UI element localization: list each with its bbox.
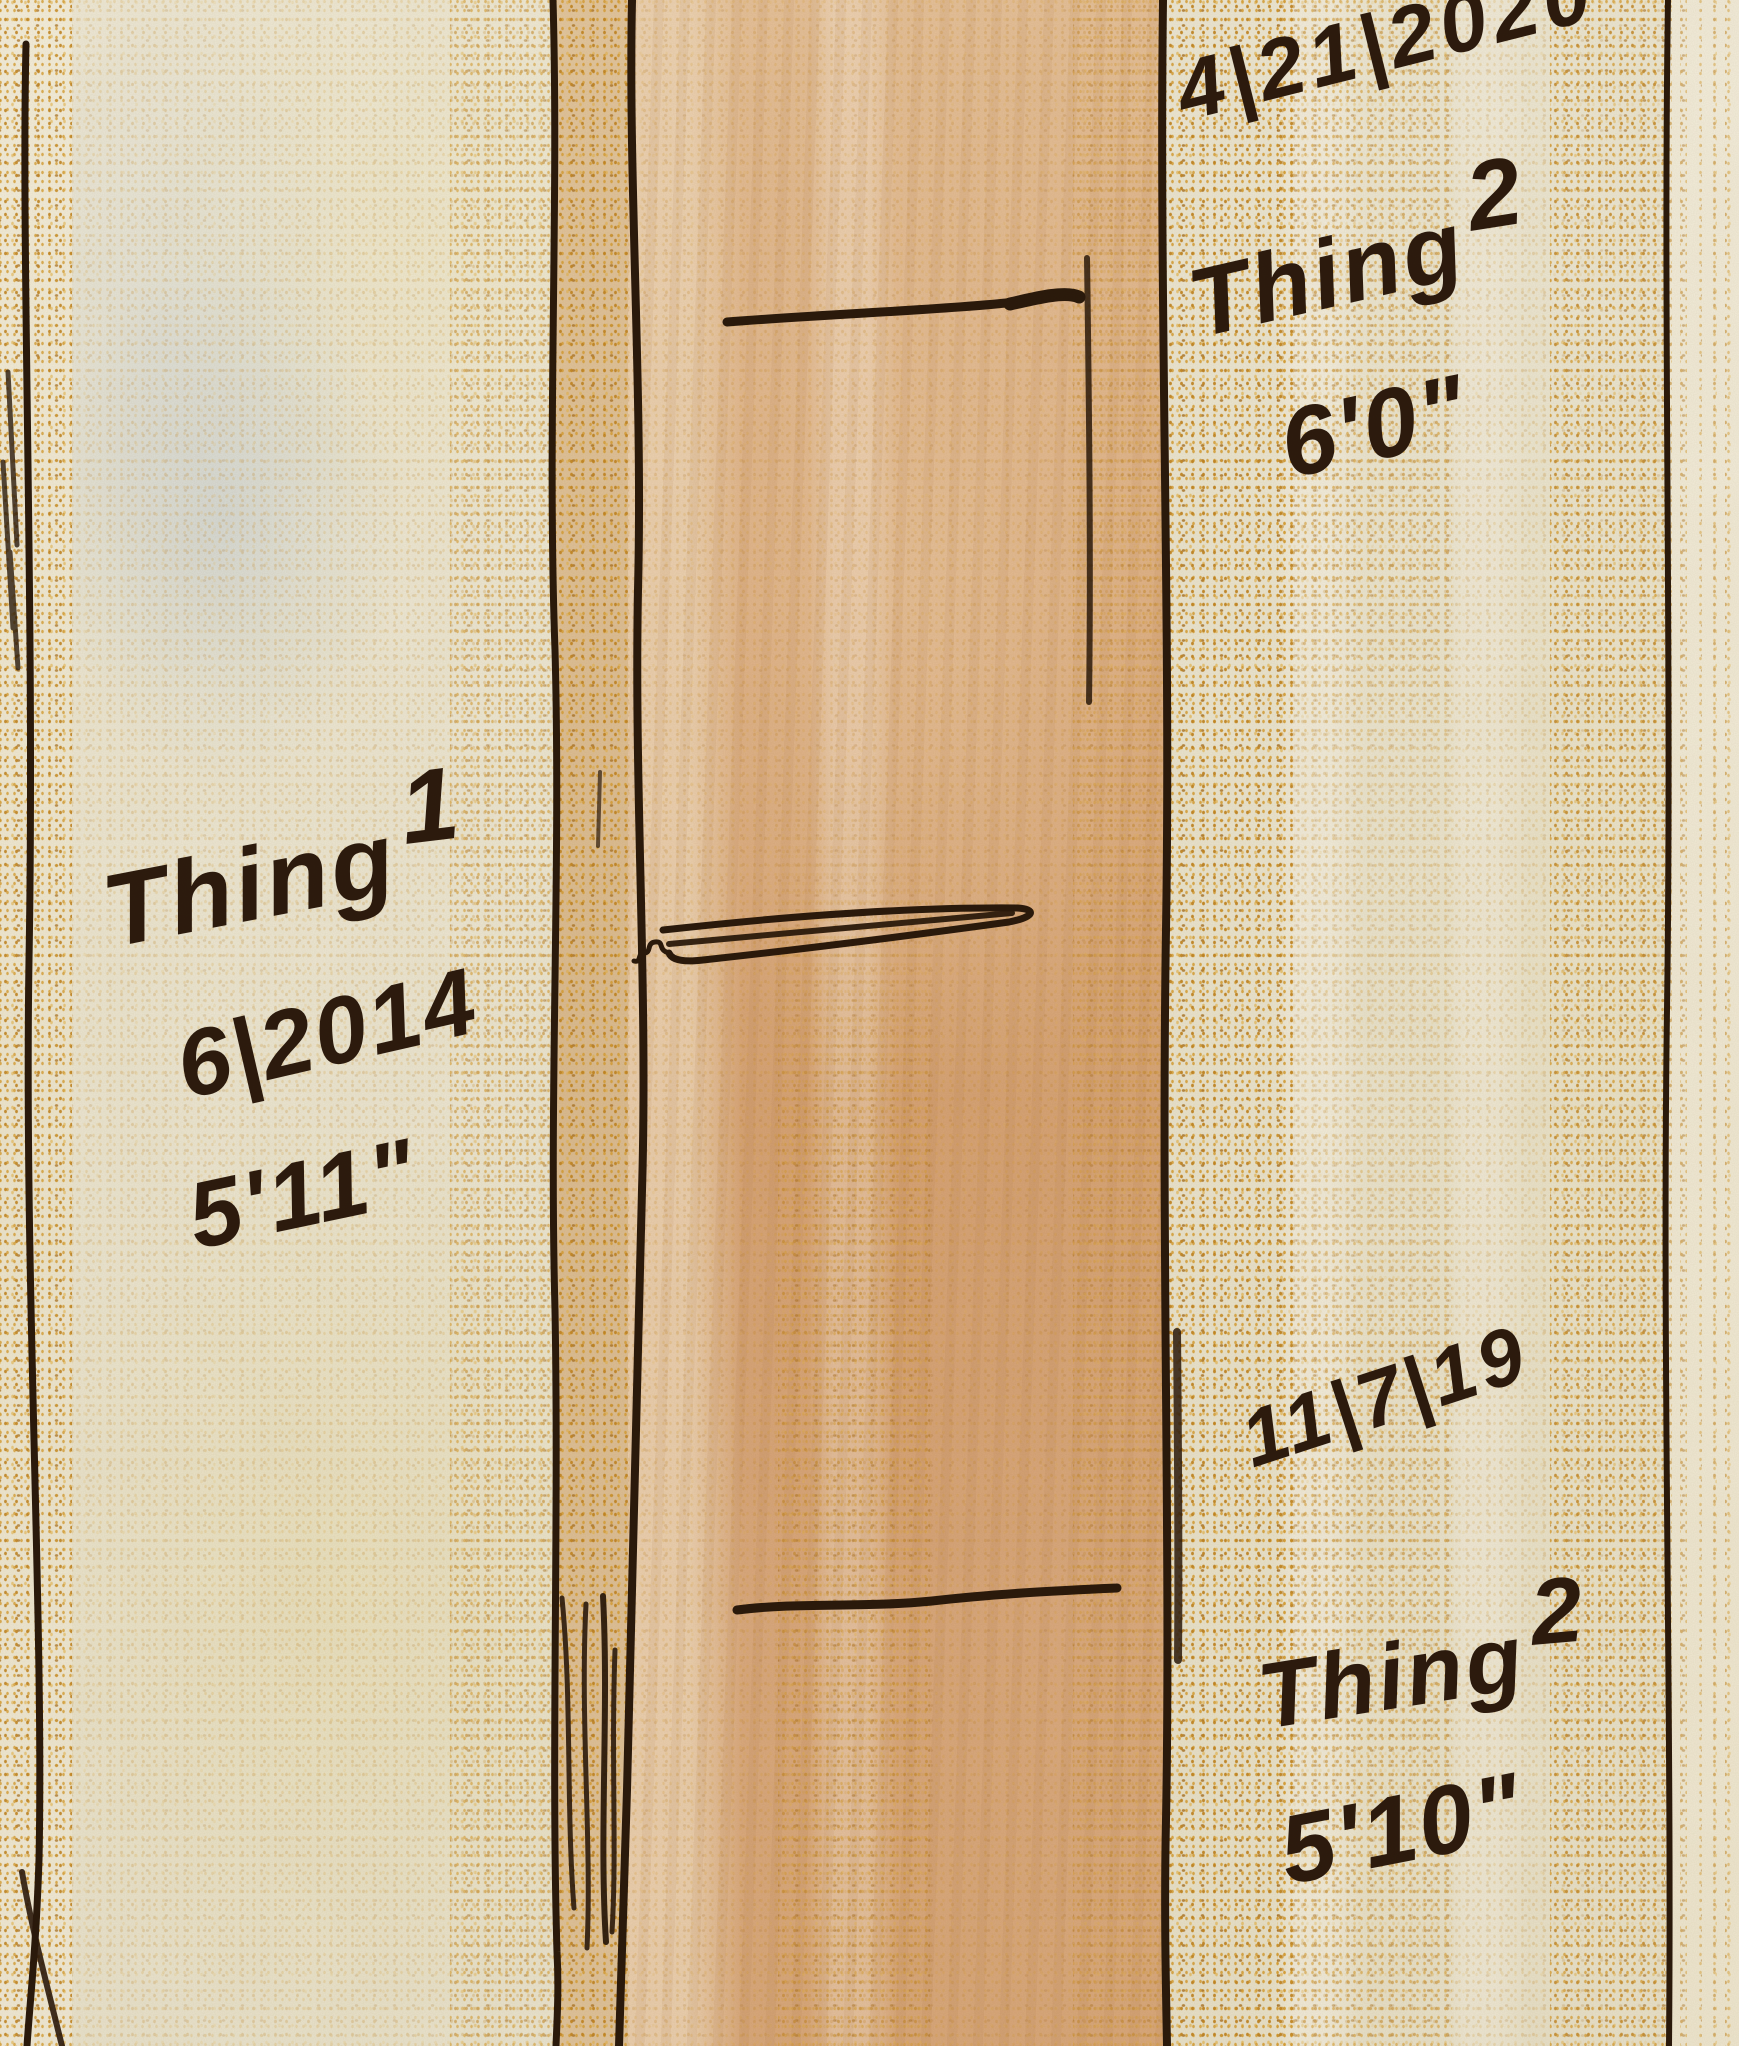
door-frame-left-edge	[555, 0, 628, 2046]
right-paper-margin	[1665, 0, 1739, 2046]
crayon-texture	[1073, 0, 1165, 2046]
crayon-texture	[628, 0, 1165, 2046]
crayon-texture	[0, 0, 72, 2046]
crayon-texture	[1665, 0, 1739, 2046]
door-frame-board	[628, 0, 1165, 2046]
crayon-texture	[555, 0, 628, 2046]
left-paper-margin	[0, 0, 72, 2046]
annotation-name-number: 1	[394, 750, 466, 860]
crayon-texture	[778, 0, 930, 2046]
annotation-name-number: 2	[1527, 1562, 1590, 1659]
height-chart-painting: 4|21|2020 Thing2 6'0" Thing1 6|2014 5'11…	[0, 0, 1739, 2046]
crayon-texture	[1550, 0, 1665, 2046]
